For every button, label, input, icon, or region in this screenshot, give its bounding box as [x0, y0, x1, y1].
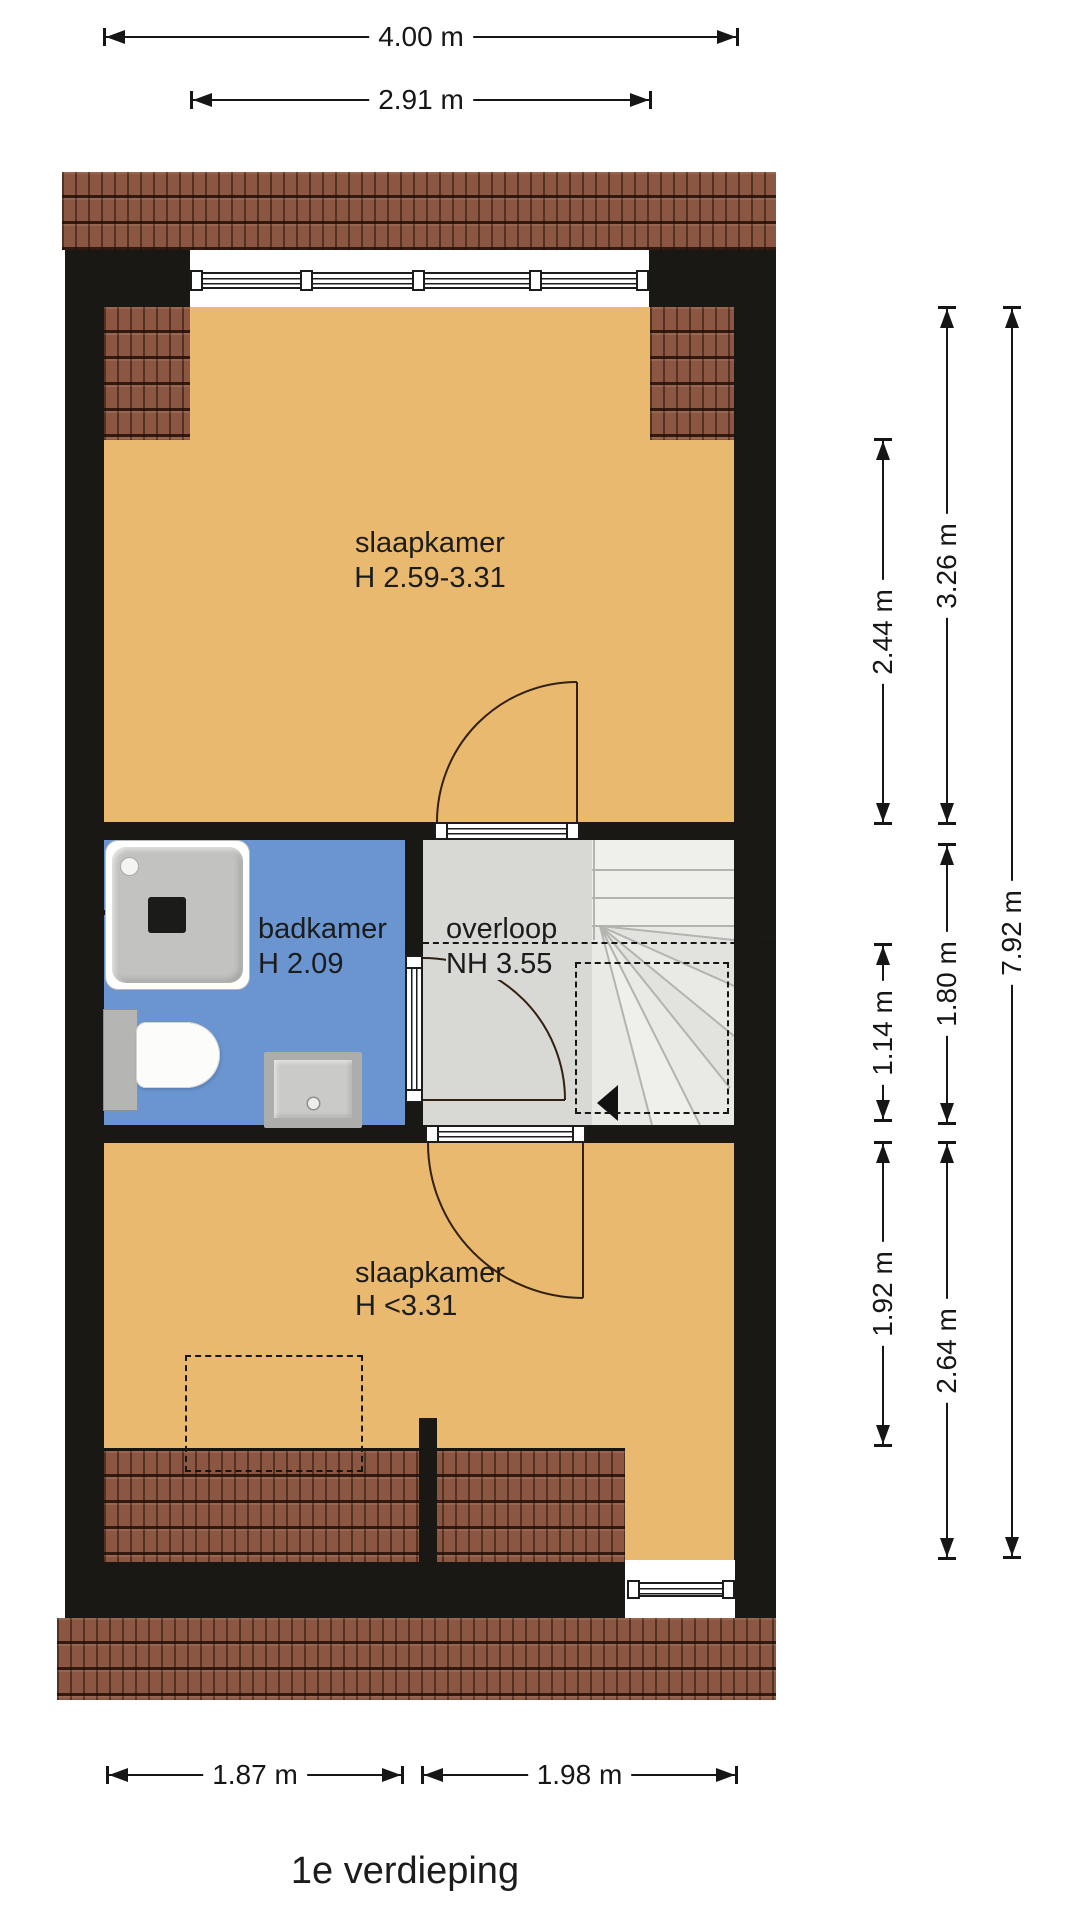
dim-bottom-right: 1.98 m [423, 1774, 736, 1776]
dim-label: 1.14 m [867, 981, 899, 1085]
arrow-right-icon [630, 93, 649, 107]
door-arc-bedroom-top [437, 682, 577, 822]
dim-label: 1.80 m [931, 932, 963, 1036]
arrow-up-icon [940, 1144, 954, 1163]
arrow-up-icon [876, 441, 890, 460]
room-height: H 2.59-3.31 [354, 562, 506, 594]
dim-stair-opening: 1.14 m [882, 945, 884, 1120]
dim-label: 2.91 m [369, 84, 473, 116]
dim-label: 1.98 m [528, 1759, 632, 1791]
label-bathroom: badkamer H 2.09 [258, 912, 387, 982]
label-bedroom-top: slaapkamer H 2.59-3.31 [300, 526, 560, 596]
room-height: H <3.31 [355, 1290, 457, 1322]
arrow-left-icon [106, 30, 125, 44]
arrow-down-icon [940, 803, 954, 822]
dim-label: 4.00 m [369, 21, 473, 53]
dim-top-room: 3.26 m [946, 308, 948, 823]
dim-label: 7.92 m [996, 881, 1028, 985]
dim-label: 3.26 m [931, 514, 963, 618]
arrow-right-icon [716, 1768, 735, 1782]
arrow-up-icon [876, 1144, 890, 1163]
label-bedroom-bottom: slaapkamer H <3.31 [355, 1257, 505, 1323]
room-height: H 2.09 [258, 948, 343, 980]
dim-middle: 1.80 m [946, 845, 948, 1123]
dim-label: 2.64 m [931, 1299, 963, 1403]
dim-width-inner: 2.91 m [192, 99, 650, 101]
room-height: NH 3.55 [446, 948, 552, 980]
page-title: 1e verdieping [205, 1850, 605, 1893]
arrow-down-icon [940, 1538, 954, 1557]
dim-label: 2.44 m [867, 580, 899, 684]
dim-bottom-left: 1.87 m [108, 1774, 402, 1776]
arrow-down-icon [1005, 1537, 1019, 1556]
arrow-right-icon [717, 30, 736, 44]
dim-width-total: 4.00 m [105, 36, 737, 38]
floorplan-canvas: slaapkamer H 2.59-3.31 badkamer H 2.09 o… [0, 0, 1080, 1920]
dim-label: 1.87 m [203, 1759, 307, 1791]
room-name: overloop [446, 913, 557, 945]
arrow-up-icon [876, 946, 890, 965]
room-name: slaapkamer [355, 527, 505, 559]
dim-bottom-room-partial: 1.92 m [882, 1143, 884, 1445]
arrow-right-icon [382, 1768, 401, 1782]
dim-depth-total: 7.92 m [1011, 308, 1013, 1557]
room-name: slaapkamer [355, 1257, 505, 1289]
arrow-left-icon [193, 93, 212, 107]
arrow-down-icon [876, 1425, 890, 1444]
arrow-up-icon [1005, 309, 1019, 328]
arrow-up-icon [940, 846, 954, 865]
room-name: badkamer [258, 913, 387, 945]
dim-label: 1.92 m [867, 1242, 899, 1346]
label-landing: overloop NH 3.55 [446, 912, 557, 982]
arrow-down-icon [940, 1103, 954, 1122]
dim-top-room-partial: 2.44 m [882, 440, 884, 823]
dim-bottom-room: 2.64 m [946, 1143, 948, 1558]
arrow-up-icon [940, 309, 954, 328]
arrow-down-icon [876, 1100, 890, 1119]
arrow-left-icon [424, 1768, 443, 1782]
arrow-down-icon [876, 803, 890, 822]
arrow-left-icon [109, 1768, 128, 1782]
